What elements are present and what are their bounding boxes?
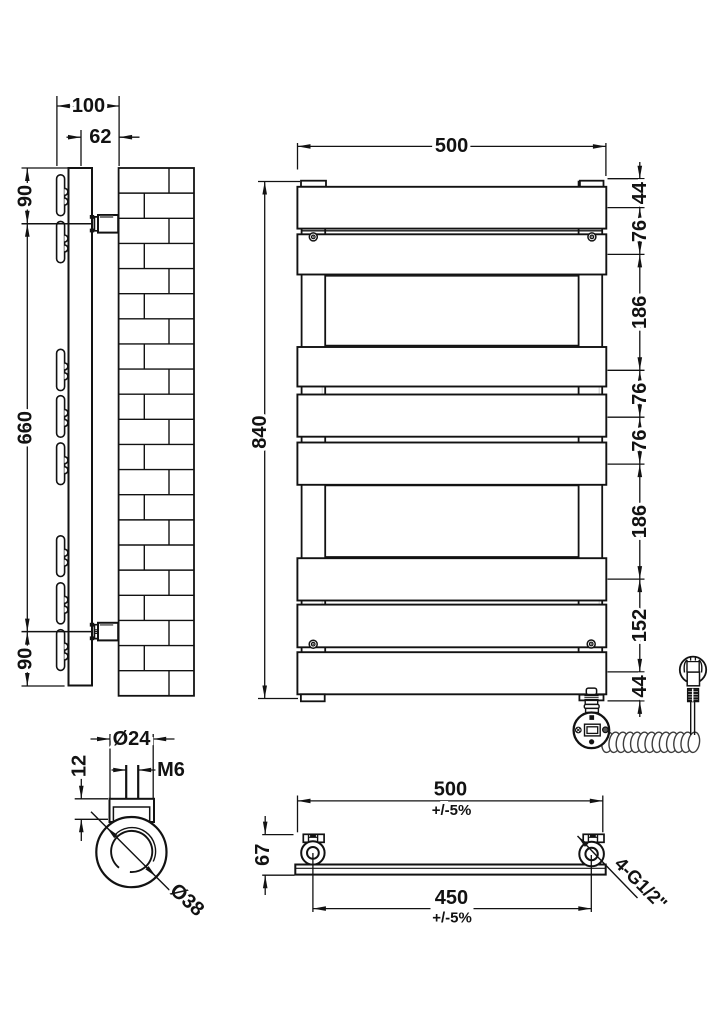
svg-text:44: 44	[629, 181, 651, 204]
svg-text:186: 186	[629, 296, 651, 329]
svg-text:Ø24: Ø24	[113, 728, 152, 750]
svg-text:186: 186	[629, 505, 651, 538]
svg-text:840: 840	[249, 415, 271, 448]
svg-text:76: 76	[629, 220, 651, 242]
svg-text:44: 44	[629, 674, 651, 697]
svg-text:660: 660	[14, 411, 36, 444]
svg-text:12: 12	[68, 755, 90, 777]
svg-text:100: 100	[72, 95, 105, 117]
svg-text:450: 450	[435, 887, 468, 909]
svg-text:76: 76	[629, 430, 651, 452]
svg-text:500: 500	[434, 778, 467, 800]
svg-text:500: 500	[435, 135, 468, 157]
svg-text:M6: M6	[157, 759, 185, 781]
svg-text:76: 76	[629, 383, 651, 405]
svg-text:62: 62	[89, 126, 111, 148]
svg-text:+/-5%: +/-5%	[432, 909, 472, 926]
svg-text:152: 152	[629, 609, 651, 642]
svg-text:90: 90	[14, 185, 36, 207]
svg-text:90: 90	[14, 648, 36, 670]
svg-text:67: 67	[252, 844, 274, 866]
svg-text:+/-5%: +/-5%	[432, 802, 472, 819]
